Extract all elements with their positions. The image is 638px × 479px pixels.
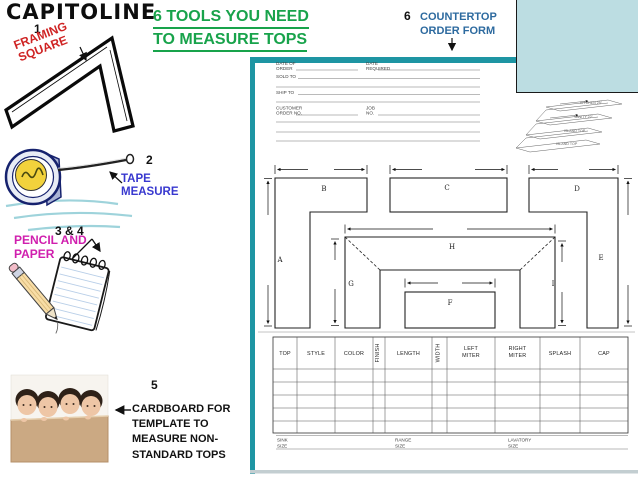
field-ship-to: SHIP TO [276, 90, 295, 95]
field-sink-size: SINK [277, 438, 289, 443]
svg-text:MITER: MITER [462, 353, 480, 359]
kids-heads [16, 388, 103, 417]
tape-blade [58, 160, 126, 170]
cardboard-sheet [11, 416, 108, 462]
svg-text:I: I [552, 280, 555, 288]
svg-text:SIZE: SIZE [508, 444, 518, 449]
order-form-label: COUNTERTOP ORDER FORM [420, 11, 497, 38]
section-F [405, 292, 495, 328]
field-sold-to: SOLD TO [276, 74, 296, 79]
svg-text:KITCHEN 25": KITCHEN 25" [580, 101, 603, 105]
tape-hook [127, 155, 134, 164]
table-headers: TOP STYLE COLOR FINISH LENGTH WIDTH LEFT… [279, 344, 610, 363]
pencil-drawing [4, 262, 68, 334]
countertop-diagram [275, 178, 618, 328]
field-range-size: RANGE [395, 438, 411, 443]
svg-text:VANITY 22": VANITY 22" [574, 115, 594, 119]
svg-text:E: E [598, 254, 603, 262]
form-header-labels: DATE OF ORDER DATE REQUIRED SOLD TO SHIP… [276, 61, 391, 116]
svg-text:SPLASH: SPLASH [549, 351, 571, 357]
order-table: TOP STYLE COLOR FINISH LENGTH WIDTH LEFT… [273, 337, 628, 433]
svg-text:H: H [449, 243, 455, 251]
cardboard-label: CARDBOARD FOR TEMPLATE TO MEASURE NON- S… [132, 402, 230, 463]
svg-text:C: C [444, 184, 449, 192]
framing-square-pointer-arrow [80, 47, 86, 60]
svg-text:A: A [276, 256, 283, 264]
size-fields: SINK SIZE RANGE SIZE LAVATORY SIZE [276, 436, 628, 450]
svg-text:B: B [321, 185, 326, 193]
svg-text:G: G [348, 280, 354, 288]
svg-text:LENGTH: LENGTH [397, 351, 420, 357]
slide: DATE OF ORDER DATE REQUIRED SOLD TO SHIP… [0, 0, 638, 479]
panel-bottom-strip [250, 470, 638, 474]
slide-title-line2: TO MEASURE TOPS [153, 29, 307, 52]
svg-text:ORDER NO.: ORDER NO. [276, 111, 302, 116]
svg-text:ORDER: ORDER [276, 66, 293, 71]
capitoline-logo: CAPITOLINE [6, 0, 156, 24]
svg-text:STYLE: STYLE [307, 351, 325, 357]
svg-text:SIZE: SIZE [395, 444, 405, 449]
pencil-paper-label: PENCIL AND PAPER [14, 233, 87, 261]
item-5-number: 5 [151, 378, 158, 392]
tape-measure-label: TAPE MEASURE [121, 173, 179, 199]
svg-text:F: F [448, 299, 453, 307]
slide-title: 6 TOOLS YOU NEED TO MEASURE TOPS [153, 6, 309, 52]
order-form-panel: DATE OF ORDER DATE REQUIRED SOLD TO SHIP… [250, 57, 638, 479]
order-form-svg: DATE OF ORDER DATE REQUIRED SOLD TO SHIP… [250, 57, 638, 479]
svg-text:TOP: TOP [279, 351, 291, 357]
svg-text:ISLAND TOP: ISLAND TOP [556, 142, 578, 146]
kids-cardboard-photo [11, 375, 131, 462]
notepad-drawing [45, 250, 113, 331]
svg-text:MITER: MITER [509, 353, 527, 359]
svg-text:COLOR: COLOR [344, 351, 364, 357]
svg-text:SIZE: SIZE [277, 444, 287, 449]
svg-text:FINISH: FINISH [375, 344, 381, 363]
countertop-sketch: KITCHEN 25" VANITY 22" ISLAND TOP ISLAND… [516, 100, 622, 152]
svg-text:NO.: NO. [366, 111, 374, 116]
svg-text:WIDTH: WIDTH [436, 344, 442, 363]
svg-text:LEFT: LEFT [464, 346, 478, 352]
svg-text:ISLAND TOP: ISLAND TOP [564, 129, 586, 133]
slide-title-line1: 6 TOOLS YOU NEED [153, 6, 309, 29]
blue-placeholder-box [516, 0, 638, 93]
svg-text:REQUIRED: REQUIRED [366, 66, 391, 71]
field-lavatory-size: LAVATORY [508, 438, 531, 443]
svg-text:D: D [574, 185, 580, 193]
tape-measure-drawing [6, 150, 134, 230]
panel-left-border [250, 57, 255, 474]
fingers [21, 416, 91, 423]
svg-text:CAP: CAP [598, 351, 610, 357]
framing-square-label: FRAMING SQUARE [12, 20, 74, 64]
item-2-number: 2 [146, 153, 153, 167]
item-6-number: 6 [404, 9, 411, 23]
svg-text:RIGHT: RIGHT [509, 346, 527, 352]
form-header-lines [276, 70, 480, 141]
